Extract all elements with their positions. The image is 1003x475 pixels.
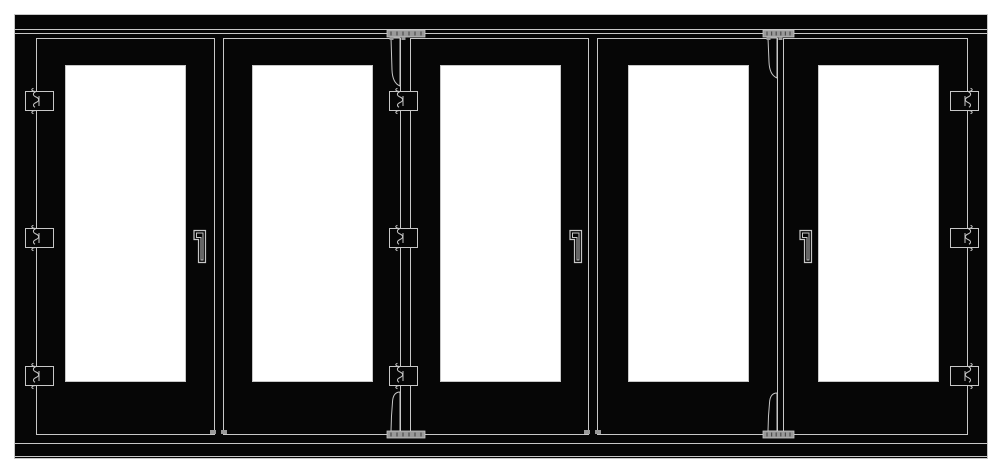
hinge-right-jamb: [951, 225, 979, 250]
plate-foot: [767, 37, 771, 40]
hinge-fold-joint-2-3: [390, 363, 418, 388]
bifold-door-elevation: [0, 0, 1003, 475]
hinge-fold-joint-2-3: [390, 88, 418, 113]
glass-pane-3: [441, 66, 561, 382]
glass-pane-1: [66, 66, 186, 382]
flush-bolt-mark: [221, 430, 227, 434]
glass-pane-5: [819, 66, 939, 382]
plate-foot: [390, 37, 394, 40]
door-drawing-canvas: [0, 0, 1003, 475]
plate-foot: [779, 37, 783, 40]
plate-foot: [402, 37, 406, 40]
flush-bolt-mark: [595, 430, 601, 434]
hinge-left-jamb: [26, 225, 54, 250]
roller-guide-plate-bottom: [387, 431, 425, 438]
hinge-left-jamb: [26, 363, 54, 388]
hinge-fold-joint-2-3: [390, 225, 418, 250]
roller-guide-plate-bottom: [763, 431, 794, 438]
flush-bolt-mark: [584, 430, 590, 434]
roller-carrier-plate-top: [763, 30, 794, 37]
glass-pane-2: [253, 66, 373, 382]
glass-pane-4: [629, 66, 749, 382]
hinge-right-jamb: [951, 88, 979, 113]
flush-bolt-mark: [210, 430, 216, 434]
roller-carrier-plate-top: [387, 30, 425, 37]
hinge-right-jamb: [951, 363, 979, 388]
hinge-left-jamb: [26, 88, 54, 113]
